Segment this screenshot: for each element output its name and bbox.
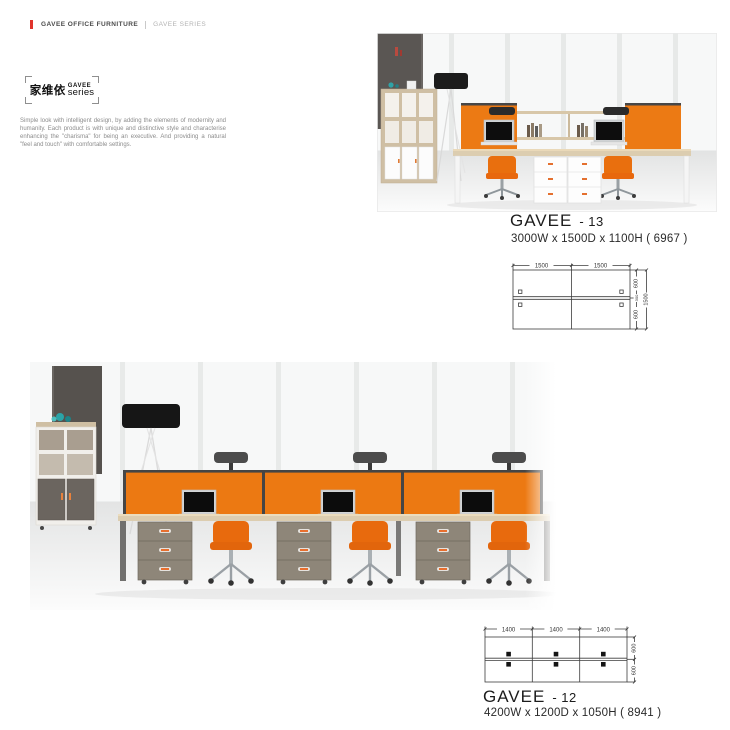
dim-label: 1500 [535, 264, 549, 270]
logo-chinese-text: 家维依 [30, 82, 66, 98]
model-number: - 12 [552, 690, 576, 705]
dim-label: 600 [632, 644, 638, 653]
laptop [591, 120, 627, 145]
laptop [481, 120, 517, 145]
header-divider [145, 21, 146, 29]
product-dimensions-gavee13: 3000W x 1500D x 1100H ( 6967 ) [511, 233, 687, 245]
logo-content: 家维依 GAVEE series [25, 76, 99, 104]
dim-label: 1400 [597, 627, 611, 633]
product-photo-gavee13 [377, 33, 717, 212]
dim-label: 600 [634, 279, 640, 288]
drawer-pedestal [138, 522, 192, 584]
laptop [457, 490, 497, 517]
product-dimensions-gavee12: 4200W x 1200D x 1050H ( 8941 ) [484, 707, 661, 719]
product-title-gavee13: GAVEE - 13 [510, 211, 604, 231]
model-name: GAVEE [510, 211, 572, 231]
drawer-pedestal [568, 157, 601, 203]
model-name: GAVEE [483, 687, 545, 707]
dim-label: 600 [634, 310, 640, 319]
catalog-page: GAVEE OFFICE FURNITURE GAVEE SERIES 家维依 … [0, 0, 730, 730]
intro-paragraph: Simple look with intelligent design, by … [20, 117, 226, 149]
drawer-pedestal [416, 522, 470, 584]
brand-accent-bar [30, 20, 33, 29]
dim-label: 300 [634, 294, 639, 301]
dim-label: 1400 [549, 627, 563, 633]
brand-label: GAVEE OFFICE FURNITURE [41, 21, 138, 28]
brand-logo: 家维依 GAVEE series [25, 76, 99, 104]
logo-english-text: GAVEE series [68, 83, 95, 98]
drawer-pedestal [277, 522, 331, 584]
dim-label: 1500 [594, 264, 608, 270]
drawer-pedestal [534, 157, 567, 203]
product-photo-gavee12 [30, 362, 556, 610]
dim-label: 1500 [644, 293, 650, 305]
dim-label: 600 [632, 666, 638, 675]
dim-label: 1400 [502, 627, 516, 633]
bookshelf [381, 81, 437, 183]
orange-screen-right [625, 103, 681, 151]
dimension-diagram-gavee13: 1500 1500 600 300 600 1500 [500, 257, 652, 341]
series-label: GAVEE SERIES [153, 21, 206, 28]
product-title-gavee12: GAVEE - 12 [483, 687, 577, 707]
laptop [318, 490, 358, 517]
shelf-cabinet [36, 413, 96, 530]
dimension-diagram-gavee12: 1400 1400 1400 600 600 [478, 622, 650, 688]
laptop [179, 490, 219, 517]
model-number: - 13 [579, 214, 603, 229]
logo-series-text: series [68, 88, 95, 98]
page-header: GAVEE OFFICE FURNITURE GAVEE SERIES [30, 20, 206, 29]
